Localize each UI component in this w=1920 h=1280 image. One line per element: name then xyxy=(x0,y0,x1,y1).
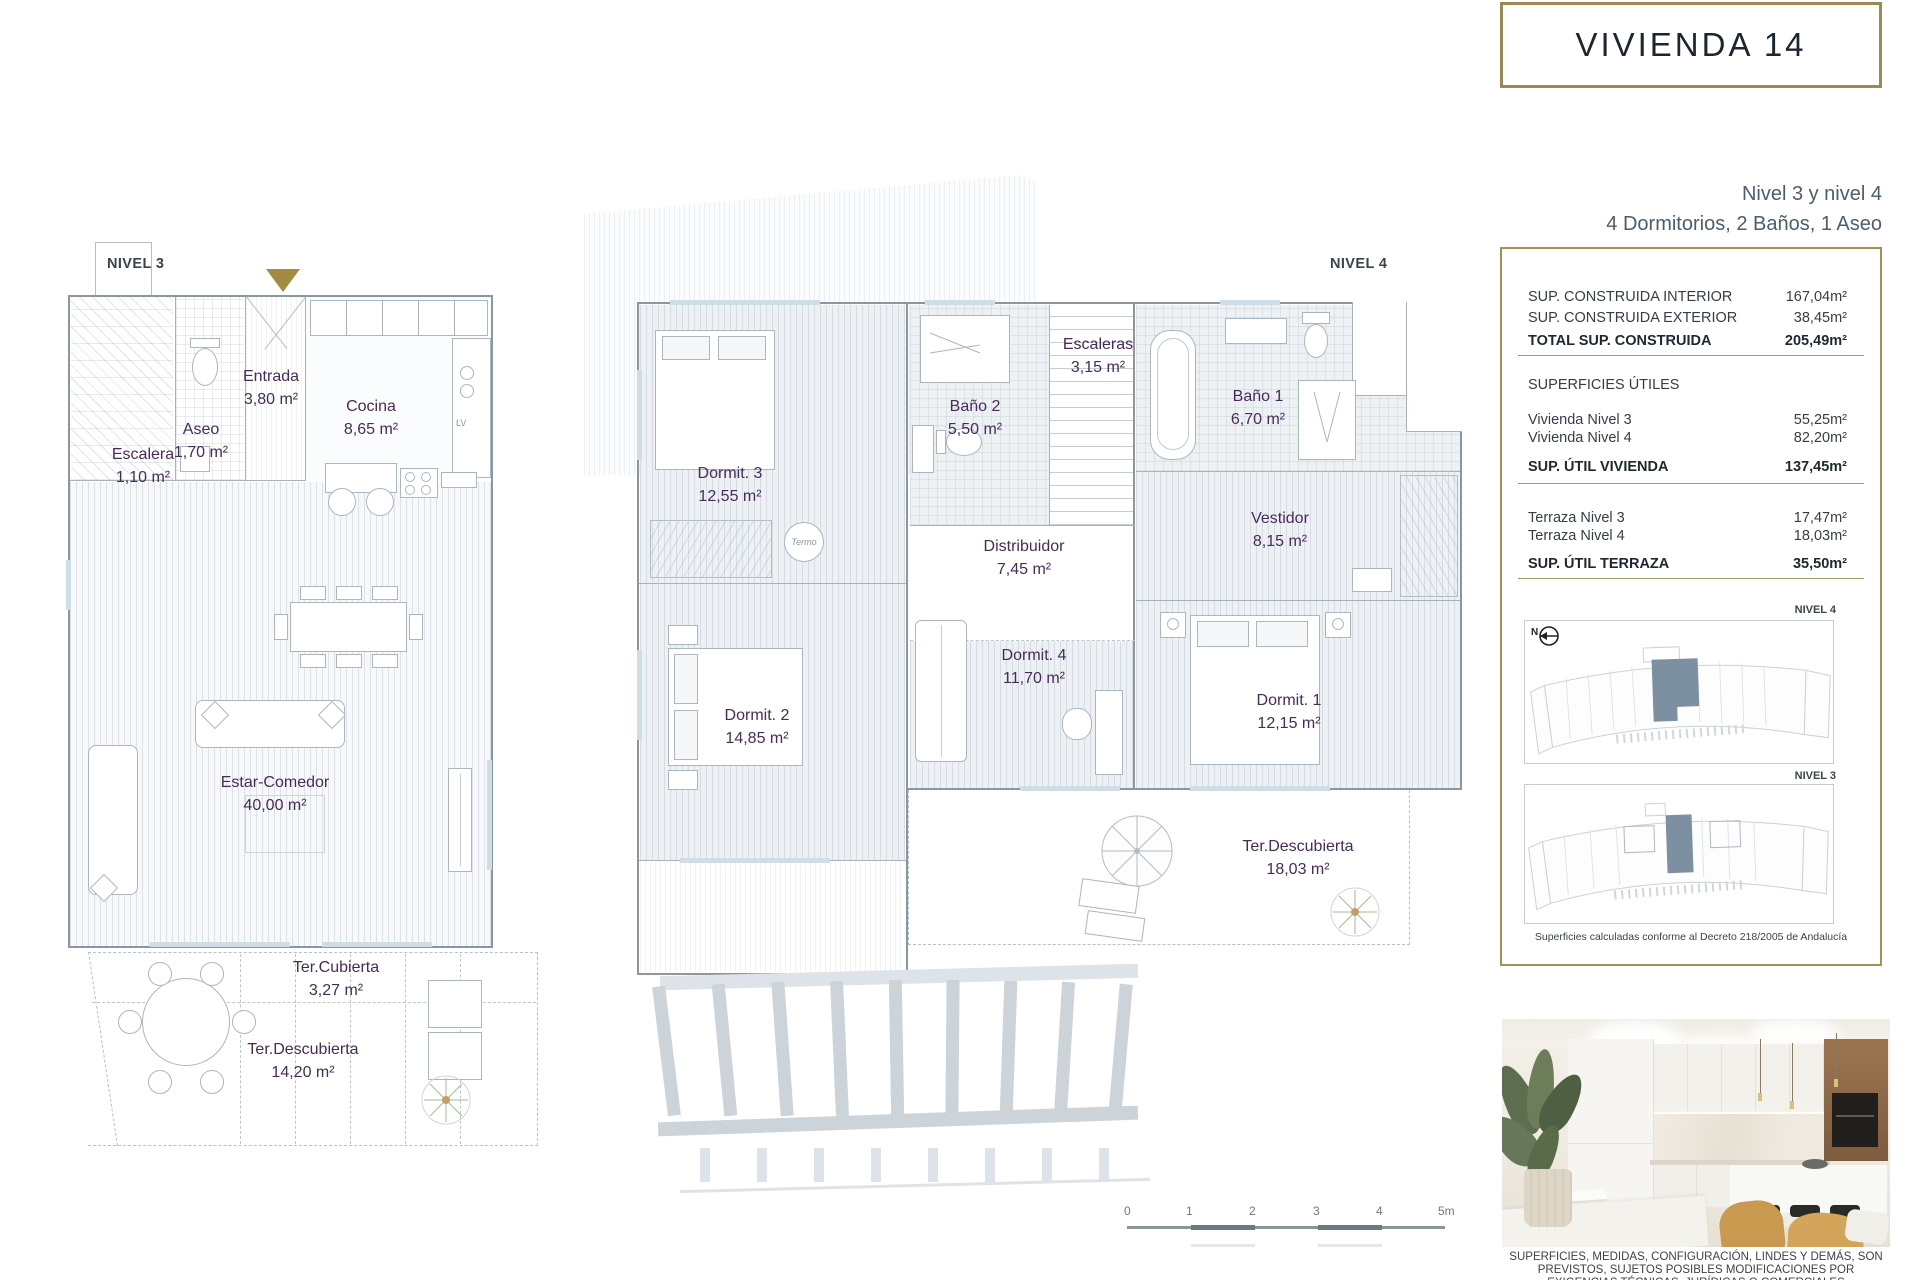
sink-glyph xyxy=(1225,318,1287,344)
summary-label: SUP. ÚTIL VIVIENDA xyxy=(1528,459,1668,475)
room-name: Vestidor xyxy=(1251,507,1309,530)
miniplan-nivel4-drawing xyxy=(1525,621,1833,763)
backsplash xyxy=(1654,1114,1826,1160)
chair-glyph xyxy=(409,614,423,640)
summary-value: 205,49m² xyxy=(1785,333,1847,349)
room-name: Dormit. 2 xyxy=(725,704,790,727)
terrace-chair xyxy=(148,1070,172,1094)
chair-glyph xyxy=(372,586,398,600)
summary-label: Terraza Nivel 3 xyxy=(1528,510,1625,526)
room-label: Aseo 1,70 m² xyxy=(174,418,228,464)
terrace-chair xyxy=(200,1070,224,1094)
pendant-cord xyxy=(1792,1043,1793,1103)
scale-shadow xyxy=(1191,1244,1255,1247)
window-glyph xyxy=(1220,300,1280,305)
summary-label: SUP. CONSTRUIDA INTERIOR xyxy=(1528,289,1732,305)
scale-tick: 1 xyxy=(1186,1204,1193,1218)
room-area: 12,15 m² xyxy=(1257,712,1322,735)
room-name: Ter.Descubierta xyxy=(247,1038,358,1061)
plan-nivel4: NIVEL 4 Termo xyxy=(580,170,1500,1215)
upper-cabinets xyxy=(1654,1044,1826,1112)
room-name: Escalera xyxy=(112,443,174,466)
window-glyph xyxy=(322,942,432,947)
toilet-glyph xyxy=(190,338,220,348)
pergola-post xyxy=(1000,981,1018,1116)
room-name: Dormit. 3 xyxy=(698,462,763,485)
scale-shadow xyxy=(1318,1244,1382,1247)
room-label: Dormit. 4 11,70 m² xyxy=(1002,644,1067,690)
room-area: 7,45 m² xyxy=(984,558,1065,581)
dishwasher-label: LV xyxy=(456,418,466,428)
miniplan-nivel3-label: NIVEL 3 xyxy=(1795,770,1836,782)
summary-label: SUP. CONSTRUIDA EXTERIOR xyxy=(1528,310,1737,326)
sofa-glyph xyxy=(88,745,138,895)
stair-extension xyxy=(95,242,152,297)
room-name: Baño 1 xyxy=(1231,385,1285,408)
summary-label: Vivienda Nivel 3 xyxy=(1528,412,1632,428)
drawer-unit-glyph xyxy=(1352,568,1392,592)
plant-icon xyxy=(1327,884,1383,940)
room-name: Distribuidor xyxy=(984,535,1065,558)
termo-glyph: Termo xyxy=(784,522,824,562)
stool-glyph xyxy=(328,488,356,516)
summary-label: SUP. ÚTIL TERRAZA xyxy=(1528,556,1669,572)
room-area: 3,15 m² xyxy=(1063,356,1133,379)
room-area: 14,20 m² xyxy=(247,1061,358,1084)
terrace-chair xyxy=(118,1010,142,1034)
burner xyxy=(421,485,431,495)
pendant-bulb xyxy=(1758,1093,1762,1101)
summary-row: SUP. CONSTRUIDA EXTERIOR 38,45m² xyxy=(1528,310,1847,326)
divider xyxy=(1518,355,1864,356)
room-name: Baño 2 xyxy=(948,395,1002,418)
disclaimer-line: SUPERFICIES, MEDIDAS, CONFIGURACIÓN, LIN… xyxy=(1488,1251,1904,1264)
summary-row: Vivienda Nivel 3 55,25m² xyxy=(1528,412,1847,428)
sofa-cushion-line xyxy=(941,625,942,757)
plan-nivel4-title: NIVEL 4 xyxy=(1330,256,1387,272)
room-area: 5,50 m² xyxy=(948,418,1002,441)
railing-post xyxy=(985,1148,995,1182)
scale-tick: 4 xyxy=(1376,1204,1383,1218)
room-area: 12,55 m² xyxy=(698,485,763,508)
utiles-heading: SUPERFICIES ÚTILES xyxy=(1528,377,1679,393)
summary-label: TOTAL SUP. CONSTRUIDA xyxy=(1528,333,1711,349)
divider xyxy=(1518,578,1864,579)
summary-label: Terraza Nivel 4 xyxy=(1528,528,1625,544)
toilet-glyph xyxy=(1302,312,1330,324)
entrance-arrow-icon xyxy=(266,269,300,292)
room-label: Dormit. 1 12,15 m² xyxy=(1257,689,1322,735)
room-area: 40,00 m² xyxy=(221,794,329,817)
chair-glyph xyxy=(274,614,288,640)
terrace-chair xyxy=(200,962,224,986)
summary-value: 17,47m² xyxy=(1794,510,1847,526)
pillow-glyph xyxy=(674,710,698,760)
chair-glyph xyxy=(336,654,362,668)
divider xyxy=(1518,483,1864,484)
room-area: 14,85 m² xyxy=(725,727,790,750)
summary-row-total: SUP. ÚTIL VIVIENDA 137,45m² xyxy=(1528,459,1847,475)
room-name: Escaleras xyxy=(1063,333,1133,356)
pillow-glyph xyxy=(1256,621,1308,647)
miniplan-nivel4-label: NIVEL 4 xyxy=(1795,604,1836,616)
subtitle-rooms: 4 Dormitorios, 2 Baños, 1 Aseo xyxy=(1490,213,1882,236)
summary-row: SUP. CONSTRUIDA INTERIOR 167,04m² xyxy=(1528,289,1847,305)
desk-chair-glyph xyxy=(1062,708,1092,740)
scale-tick: 2 xyxy=(1249,1204,1256,1218)
room-label: Escalera 1,10 m² xyxy=(112,443,174,489)
summary-row-total: TOTAL SUP. CONSTRUIDA 205,49m² xyxy=(1528,333,1847,349)
room-label: Escaleras 3,15 m² xyxy=(1063,333,1133,379)
summary-value: 167,04m² xyxy=(1786,289,1847,305)
lamp-glyph xyxy=(1167,618,1179,630)
kitchen-photo xyxy=(1502,1019,1890,1247)
room-name: Estar-Comedor xyxy=(221,771,329,794)
pergola-post xyxy=(945,980,959,1116)
burner xyxy=(421,472,431,482)
shower-drain-lines xyxy=(1298,380,1356,460)
terrace-joint xyxy=(240,954,241,1144)
closet-glyph xyxy=(1400,475,1458,597)
pillow-glyph xyxy=(718,336,766,360)
kitchen-counter-seam xyxy=(418,300,419,336)
cabinet-seam xyxy=(1568,1143,1654,1144)
summary-row: Vivienda Nivel 4 82,20m² xyxy=(1528,430,1847,446)
pergola-post xyxy=(830,981,849,1116)
summary-row: Terraza Nivel 3 17,47m² xyxy=(1528,510,1847,526)
scale-tick: 5m xyxy=(1438,1204,1455,1218)
pergola-post xyxy=(1108,984,1132,1117)
disclaimer-line: PREVISTOS, SUJETOS POSIBLES MODIFICACION… xyxy=(1488,1264,1904,1277)
plant-icon xyxy=(418,1072,474,1128)
kitchen-sink-unit xyxy=(452,338,491,478)
terrace-chair xyxy=(148,962,172,986)
pergola-post xyxy=(652,986,681,1117)
window-glyph xyxy=(150,942,290,947)
nightstand-glyph xyxy=(668,625,698,645)
summary-value: 137,45m² xyxy=(1785,459,1847,475)
tv-unit-line xyxy=(460,774,461,866)
chair-glyph xyxy=(336,586,362,600)
sink-bowl xyxy=(460,384,474,398)
room-area: 6,70 m² xyxy=(1231,408,1285,431)
pergola-post xyxy=(712,984,738,1117)
compass-label: N xyxy=(1531,627,1538,638)
inner-wall xyxy=(1136,471,1460,472)
terrace-table xyxy=(142,978,230,1066)
pergola-post xyxy=(1054,982,1075,1117)
room-name: Dormit. 1 xyxy=(1257,689,1322,712)
sliding-door-glyph xyxy=(487,760,492,870)
room-label: Ter.Cubierta 3,27 m² xyxy=(293,956,379,1002)
pendant-bulb xyxy=(1790,1101,1794,1109)
nightstand-glyph xyxy=(668,770,698,790)
kitchen-counter-seam xyxy=(382,300,383,336)
kitchen-counter xyxy=(310,300,488,336)
plant-pot xyxy=(1524,1169,1572,1227)
room-name: Dormit. 4 xyxy=(1002,644,1067,667)
room-label: Cocina 8,65 m² xyxy=(344,395,398,441)
bathtub-inner xyxy=(1157,338,1189,450)
window-glyph xyxy=(925,300,995,305)
subtitle-levels: Nivel 3 y nivel 4 xyxy=(1490,183,1882,206)
window-glyph xyxy=(670,300,820,305)
window-glyph xyxy=(66,560,71,610)
scale-line xyxy=(1127,1226,1445,1229)
railing-post xyxy=(928,1148,938,1182)
pillow-glyph xyxy=(1197,621,1249,647)
pergola-post xyxy=(889,980,904,1116)
toilet-glyph xyxy=(1304,324,1328,358)
disclaimer: SUPERFICIES, MEDIDAS, CONFIGURACIÓN, LIN… xyxy=(1488,1251,1904,1280)
kitchen-counter-seam xyxy=(454,300,455,336)
summary-value: 38,45m² xyxy=(1794,310,1847,326)
miniplan-nivel3 xyxy=(1524,784,1834,924)
kitchen-counter-seam xyxy=(346,300,347,336)
room-area: 3,27 m² xyxy=(293,979,379,1002)
room-label: Baño 2 5,50 m² xyxy=(948,395,1002,441)
window-glyph xyxy=(680,858,830,863)
pendant-cord xyxy=(1836,1033,1837,1081)
miniplan-nivel3-drawing xyxy=(1525,785,1833,923)
window-glyph xyxy=(637,370,642,460)
umbrella-icon xyxy=(1099,813,1175,889)
inner-wall xyxy=(305,297,306,480)
miniplan-nivel4: N xyxy=(1524,620,1834,764)
outline-notch xyxy=(1406,302,1462,432)
plan-nivel3: NIVEL 3 LV xyxy=(60,250,540,1170)
terrace-chair xyxy=(232,1010,256,1034)
room-area: 1,10 m² xyxy=(112,466,174,489)
oven-handle xyxy=(1836,1115,1874,1117)
small-appliance xyxy=(441,472,477,488)
room-label: Vestidor 8,15 m² xyxy=(1251,507,1309,553)
scale-segment xyxy=(1191,1225,1255,1230)
room-name: Ter.Descubierta xyxy=(1242,835,1353,858)
room-label: Ter.Descubierta 18,03 m² xyxy=(1242,835,1353,881)
built-in-oven xyxy=(1832,1093,1878,1147)
railing-post xyxy=(757,1148,767,1182)
title-box: VIVIENDA 14 xyxy=(1500,2,1882,88)
sink-glyph xyxy=(912,425,934,473)
inner-wall xyxy=(639,583,906,584)
railing-post xyxy=(1042,1148,1052,1182)
pillow-glyph xyxy=(662,336,710,360)
pergola-post xyxy=(771,982,793,1117)
chair-glyph xyxy=(300,654,326,668)
shower-drain-lines xyxy=(920,315,1010,383)
toilet-glyph xyxy=(192,348,218,386)
pendant-cord xyxy=(1760,1039,1761,1095)
railing-rail xyxy=(680,1178,1150,1193)
inner-wall xyxy=(70,480,306,481)
scale-tick: 0 xyxy=(1124,1204,1131,1218)
room-name: Cocina xyxy=(344,395,398,418)
floorplan-sheet: VIVIENDA 14 Nivel 3 y nivel 4 4 Dormitor… xyxy=(0,0,1920,1280)
room-label: Baño 1 6,70 m² xyxy=(1231,385,1285,431)
chair-glyph xyxy=(300,586,326,600)
summary-value: 18,03m² xyxy=(1794,528,1847,544)
room-label: Estar-Comedor 40,00 m² xyxy=(221,771,329,817)
toilet-glyph xyxy=(936,430,946,454)
railing-post xyxy=(814,1148,824,1182)
room-label: Dormit. 3 12,55 m² xyxy=(698,462,763,508)
summary-value: 35,50m² xyxy=(1793,556,1847,572)
summary-label: Vivienda Nivel 4 xyxy=(1528,430,1632,446)
room-label: Distribuidor 7,45 m² xyxy=(984,535,1065,581)
dining-table xyxy=(290,602,407,652)
stool-glyph xyxy=(366,488,394,516)
railing-post xyxy=(1099,1148,1109,1182)
scale-tick: 3 xyxy=(1313,1204,1320,1218)
chair-glyph xyxy=(372,654,398,668)
terrace-joint xyxy=(405,954,406,1144)
room-label: Entrada 3,80 m² xyxy=(243,365,299,411)
sink-bowl xyxy=(460,366,474,380)
room-area: 1,70 m² xyxy=(174,441,228,464)
room-area: 3,80 m² xyxy=(243,388,299,411)
room-name: Aseo xyxy=(174,418,228,441)
room-label: Ter.Descubierta 14,20 m² xyxy=(247,1038,358,1084)
scale-segment xyxy=(1318,1225,1382,1230)
burner xyxy=(405,472,415,482)
desk-glyph xyxy=(1095,690,1123,775)
room-area: 18,03 m² xyxy=(1242,858,1353,881)
railing-post xyxy=(700,1148,710,1182)
decree-note: Superficies calculadas conforme al Decre… xyxy=(1502,931,1880,943)
room-name: Ter.Cubierta xyxy=(293,956,379,979)
surface-summary-panel: SUP. CONSTRUIDA INTERIOR 167,04m² SUP. C… xyxy=(1500,247,1882,966)
bowl xyxy=(1802,1159,1828,1169)
inner-wall xyxy=(1136,600,1460,601)
inner-wall xyxy=(910,525,1135,526)
room-area: 11,70 m² xyxy=(1002,667,1067,690)
summary-value: 82,20m² xyxy=(1794,430,1847,446)
room-area: 8,15 m² xyxy=(1251,530,1309,553)
pillow-glyph xyxy=(674,654,698,704)
room-label: Dormit. 2 14,85 m² xyxy=(725,704,790,750)
lamp-glyph xyxy=(1332,618,1344,630)
summary-row-total: SUP. ÚTIL TERRAZA 35,50m² xyxy=(1528,556,1847,572)
lounger-glyph xyxy=(428,980,482,1028)
page-title: VIVIENDA 14 xyxy=(1575,26,1806,63)
pendant-bulb xyxy=(1834,1079,1838,1087)
railing-post xyxy=(871,1148,881,1182)
burner xyxy=(405,485,415,495)
wardrobe-glyph xyxy=(650,520,772,578)
inner-wall xyxy=(1049,305,1050,525)
room-area: 8,65 m² xyxy=(344,418,398,441)
scale-bar: 0 1 2 3 4 5m xyxy=(1120,1204,1465,1254)
room-name: Entrada xyxy=(243,365,299,388)
white-pillow xyxy=(1844,1208,1890,1246)
window-glyph xyxy=(637,650,642,740)
summary-row: Terraza Nivel 4 18,03m² xyxy=(1528,528,1847,544)
summary-value: 55,25m² xyxy=(1794,412,1847,428)
